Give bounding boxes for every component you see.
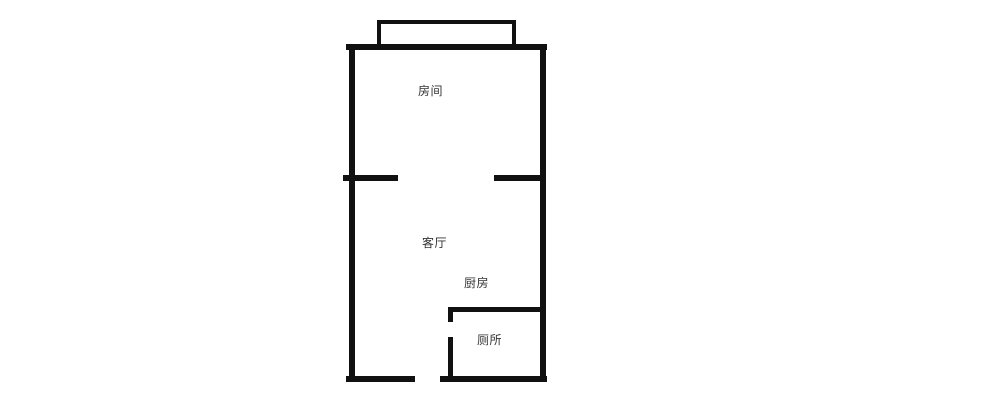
room-label-living-room: 客厅: [422, 237, 447, 250]
wall-divider-left: [343, 175, 398, 181]
wall-outer-bottom-right: [440, 376, 547, 382]
wall-divider-right: [494, 175, 546, 181]
room-label-kitchen: 厨房: [464, 277, 489, 290]
wall-balcony-right: [512, 20, 516, 48]
wall-toilet-wall-upper: [448, 307, 453, 322]
wall-balcony-top: [377, 20, 516, 24]
room-label-toilet: 厕所: [477, 334, 502, 347]
wall-outer-left: [349, 44, 355, 382]
room-label-bedroom: 房间: [418, 85, 443, 98]
wall-outer-right: [540, 44, 546, 382]
wall-toilet-wall-lower: [448, 337, 453, 382]
wall-outer-bottom-left: [346, 376, 415, 382]
wall-toilet-top: [448, 307, 546, 312]
floorplan-canvas: 房间 客厅 厨房 厕所: [0, 0, 1000, 415]
wall-balcony-left: [377, 20, 381, 48]
